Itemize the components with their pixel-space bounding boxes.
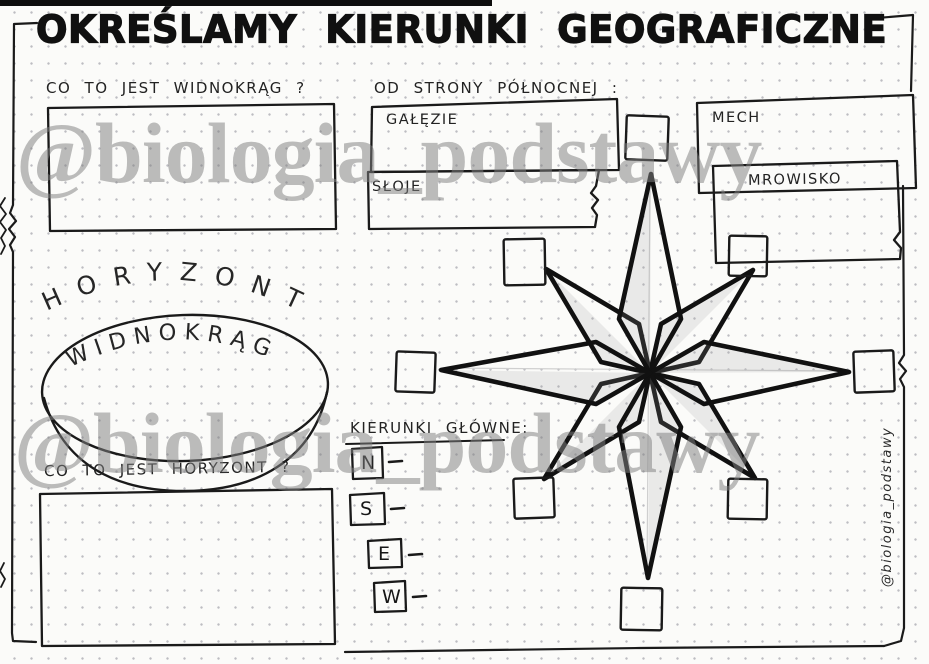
compass-label-box-ne bbox=[729, 236, 768, 277]
direction-letter-e: E bbox=[378, 543, 390, 565]
directions-underline bbox=[346, 440, 504, 444]
north-side-heading: OD STRONY PÓŁNOCNEJ : bbox=[374, 79, 618, 97]
worksheet-linework: HORYZONT WIDNOKRĄG bbox=[0, 0, 929, 664]
direction-letter-w: W bbox=[382, 586, 401, 608]
scan-edge-artifact bbox=[0, 0, 492, 6]
direction-letter-n: N bbox=[361, 452, 375, 474]
widnokrag-disc-text: WIDNOKRĄG bbox=[62, 319, 281, 373]
side-credit: @biologia_podstawy bbox=[880, 387, 900, 627]
compass-label-box-nw bbox=[504, 239, 546, 286]
horyzont-arc-text: HORYZONT bbox=[37, 257, 321, 322]
item-mrowisko: MROWISKO bbox=[748, 171, 842, 189]
compass-label-box-sw bbox=[513, 477, 554, 518]
compass-label-box-se bbox=[728, 479, 768, 520]
item-sloje: SŁOJE bbox=[372, 179, 422, 195]
worksheet-page: HORYZONT WIDNOKRĄG OKREŚLAMY KIERUNKI GE… bbox=[0, 0, 929, 664]
compass-rose bbox=[441, 174, 849, 578]
box-galezie bbox=[371, 99, 619, 172]
compass-label-box-w bbox=[395, 351, 435, 392]
compass-label-box-n bbox=[625, 115, 669, 160]
direction-letter-s: S bbox=[360, 498, 372, 520]
question-widnokrag: CO TO JEST WIDNOKRĄG ? bbox=[46, 79, 306, 97]
answer-box-horyzont bbox=[40, 489, 335, 646]
page-title: OKREŚLAMY KIERUNKI GEOGRAFICZNE bbox=[36, 7, 887, 52]
item-galezie: GAŁĘZIE bbox=[386, 112, 458, 128]
answer-box-widnokrag bbox=[48, 104, 336, 231]
item-mech: MECH bbox=[712, 110, 761, 126]
compass-label-box-s bbox=[621, 588, 663, 631]
directions-heading: KIERUNKI GŁÓWNE: bbox=[350, 419, 529, 437]
